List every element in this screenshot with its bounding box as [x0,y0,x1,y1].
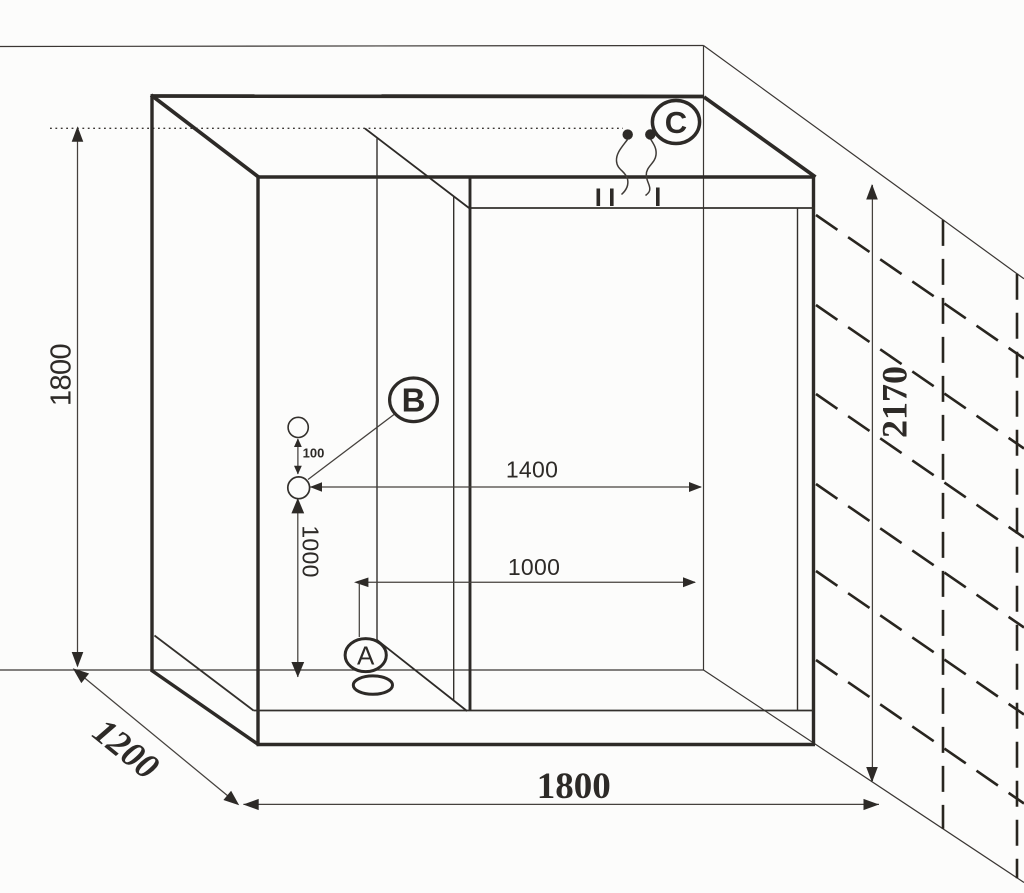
svg-text:100: 100 [303,446,325,461]
svg-text:1000: 1000 [508,554,560,580]
svg-text:A: A [357,640,375,670]
svg-text:2170: 2170 [875,366,915,438]
svg-text:1800: 1800 [537,766,611,807]
svg-text:1000: 1000 [298,525,324,577]
svg-text:B: B [402,381,426,418]
svg-text:1400: 1400 [506,457,558,483]
svg-text:C: C [665,105,687,140]
svg-text:1800: 1800 [46,344,78,406]
